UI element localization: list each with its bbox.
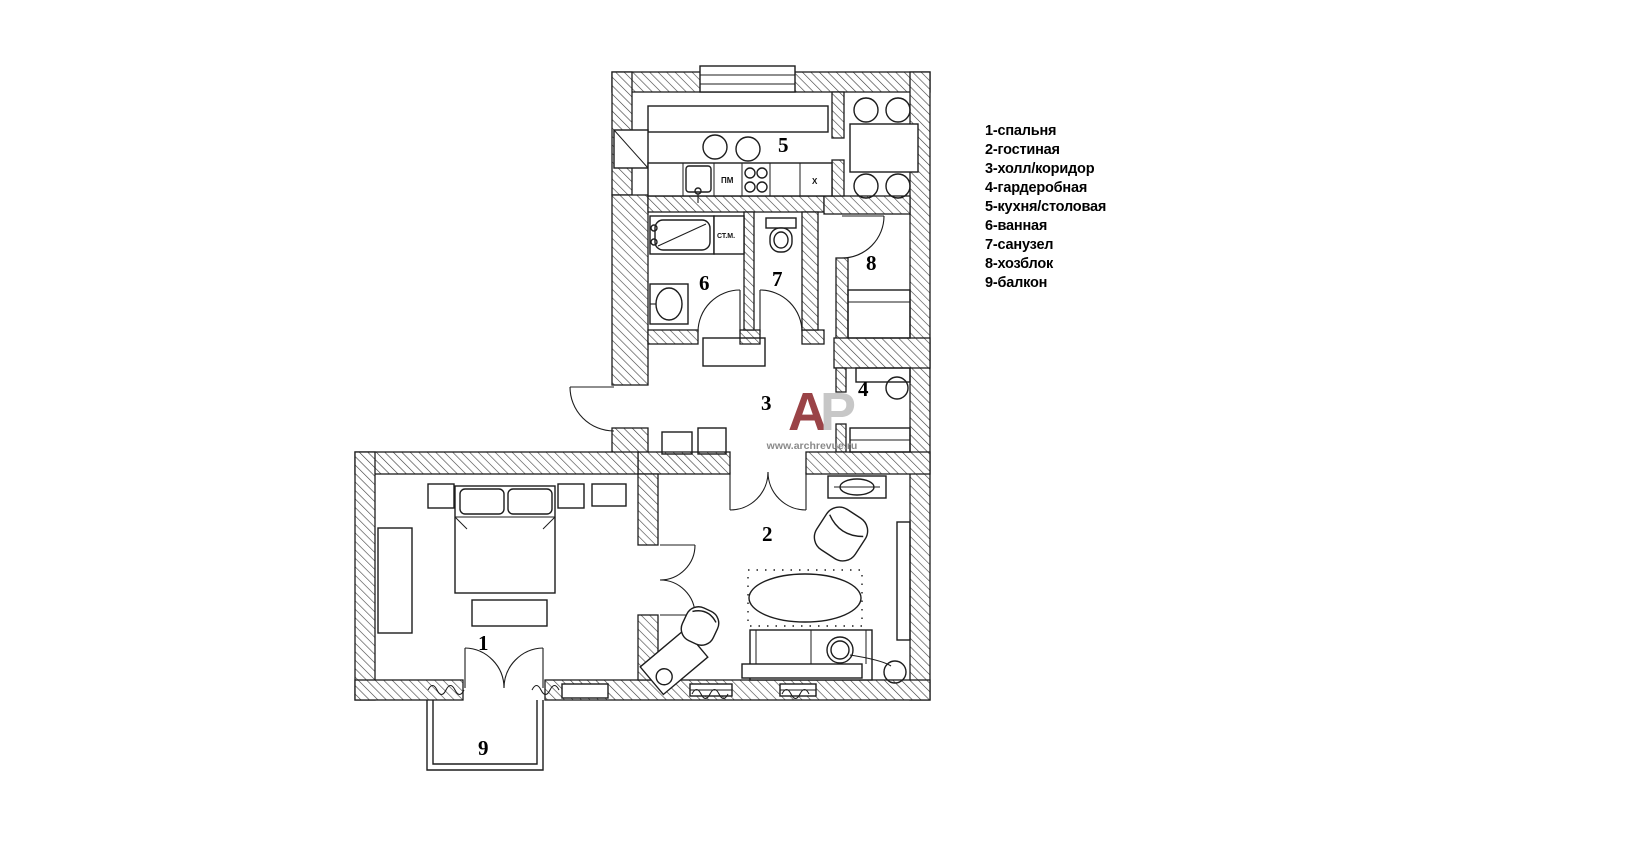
console-table	[828, 476, 886, 498]
room-number-wc: 7	[772, 267, 783, 291]
utility-door	[842, 216, 884, 258]
bed	[455, 486, 555, 593]
legend: 1-спальня 2-гостиная 3-холл/коридор 4-га…	[985, 122, 1205, 293]
kitchen-island-counter	[648, 106, 828, 132]
room-number-kitchen: 5	[778, 133, 789, 157]
room-number-wardrobe: 4	[858, 377, 869, 401]
hall-cabinet	[662, 432, 692, 454]
logo-letter-p: Р	[820, 382, 855, 442]
wall-shelf-unit	[897, 522, 910, 640]
bedroom-wardrobe	[378, 528, 412, 633]
wc-door	[760, 290, 802, 332]
wash-basin	[650, 284, 688, 324]
logo-url: www.archrevue.ru	[766, 440, 858, 452]
bedroom-area	[378, 484, 626, 633]
balcony-french-doors	[465, 648, 543, 688]
living-area	[640, 476, 910, 694]
svg-text:СТ.М.: СТ.М.	[717, 233, 735, 240]
dishwasher-label: ПМ	[721, 176, 734, 185]
bar-stool	[703, 135, 727, 159]
bed-bench	[472, 600, 547, 626]
room-number-bedroom: 1	[478, 631, 489, 655]
legend-item-wardrobe: 4-гардеробная	[985, 179, 1205, 198]
legend-item-kitchen: 5-кухня/столовая	[985, 198, 1205, 217]
kitchen-window	[700, 66, 795, 92]
nightstand	[428, 484, 454, 508]
utility-shelf	[848, 290, 910, 338]
fridge-label: Х	[812, 177, 818, 186]
entrance-door	[570, 387, 614, 431]
coffee-table	[749, 574, 861, 622]
room-number-balcony: 9	[478, 736, 489, 760]
legend-item-living: 2-гостиная	[985, 141, 1205, 160]
dining-table	[850, 124, 918, 172]
logo: А Р www.archrevue.ru	[766, 382, 858, 452]
wardrobe-stool	[886, 377, 908, 399]
bathroom-door	[698, 290, 740, 332]
legend-item-balcony: 9-балкон	[985, 274, 1205, 293]
nightstand	[558, 484, 584, 508]
armchair	[809, 501, 874, 566]
legend-item-bath: 6-ванная	[985, 217, 1205, 236]
floor-plan-drawing: ПМ Х СТ.М.	[0, 0, 1647, 860]
room-number-hall: 3	[761, 391, 772, 415]
toilet	[766, 218, 796, 252]
vent-shaft	[614, 130, 648, 168]
bedroom-living-double-door	[660, 545, 695, 615]
bathtub	[650, 216, 714, 254]
hall-cabinet	[698, 428, 726, 454]
legend-item-bedroom: 1-спальня	[985, 122, 1205, 141]
dresser	[592, 484, 626, 506]
legend-item-utility: 8-хозблок	[985, 255, 1205, 274]
utility-area	[848, 290, 910, 452]
room-number-utility: 8	[866, 251, 877, 275]
room-number-bath: 6	[699, 271, 710, 295]
room-number-living: 2	[762, 522, 773, 546]
floor-plan-page: ПМ Х СТ.М.	[0, 0, 1647, 860]
kitchen-area: ПМ Х	[614, 98, 918, 203]
hall-area	[662, 338, 765, 454]
bedroom-window-sill	[562, 684, 608, 698]
kitchen-counter	[648, 163, 832, 196]
bar-stool	[736, 137, 760, 161]
washing-machine: СТ.М.	[714, 216, 744, 254]
hall-living-double-door	[730, 472, 806, 510]
legend-item-hall: 3-холл/коридор	[985, 160, 1205, 179]
dining-table-set	[850, 98, 918, 198]
legend-item-wc: 7-санузел	[985, 236, 1205, 255]
